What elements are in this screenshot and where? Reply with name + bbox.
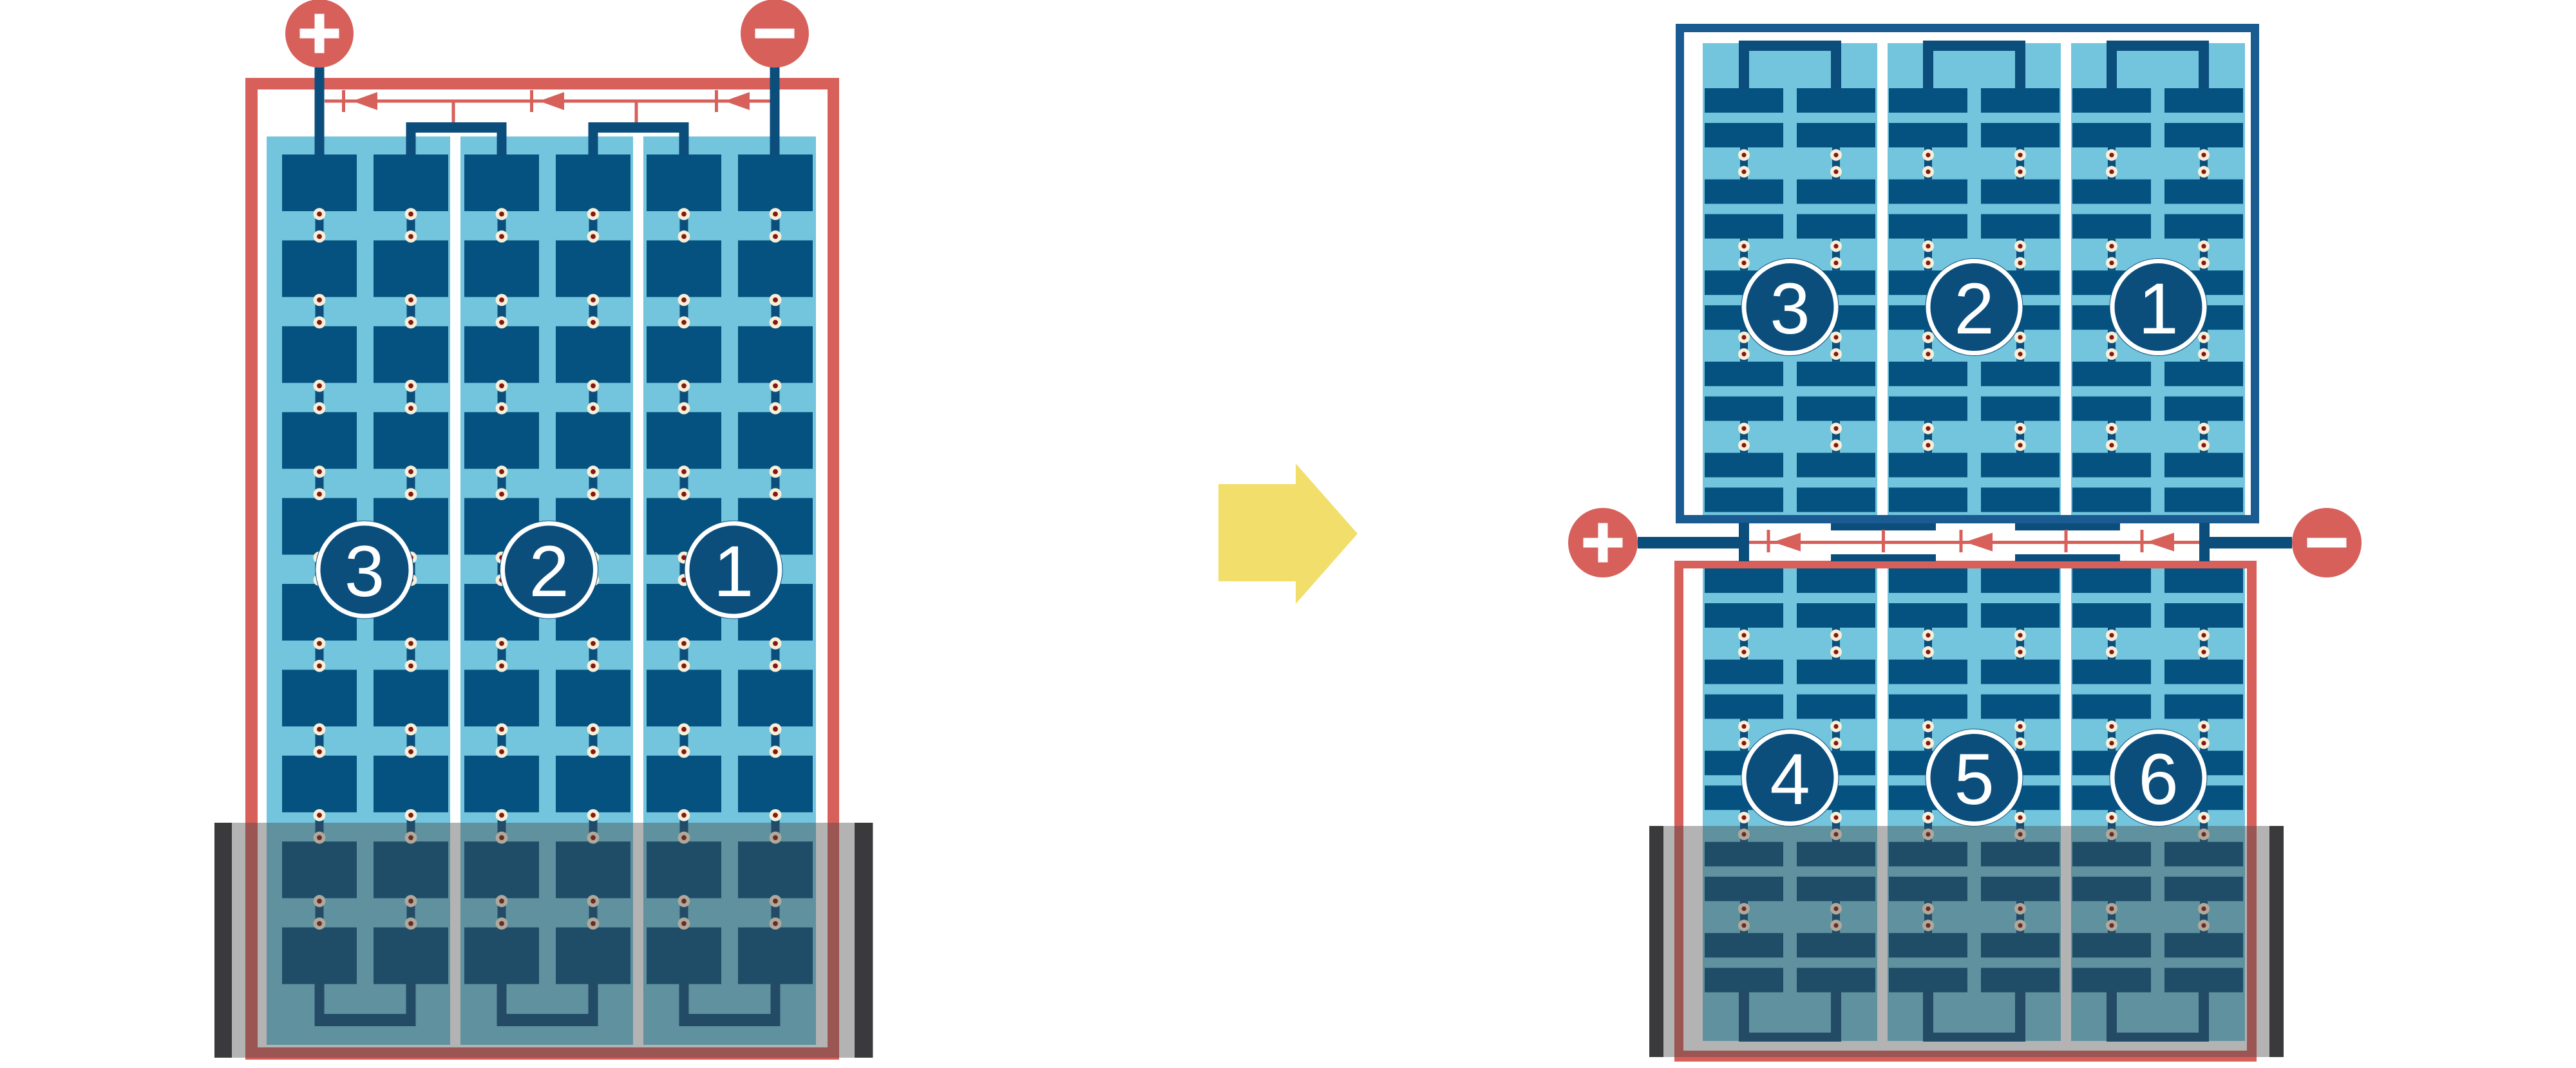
svg-text:4: 4: [1770, 739, 1810, 820]
svg-text:2: 2: [1954, 268, 1994, 349]
svg-text:1: 1: [2138, 268, 2178, 349]
svg-text:5: 5: [1954, 739, 1994, 820]
svg-text:6: 6: [2138, 739, 2178, 820]
svg-text:3: 3: [1770, 268, 1810, 349]
svg-text:1: 1: [714, 531, 753, 612]
svg-text:3: 3: [345, 531, 384, 612]
svg-text:2: 2: [529, 531, 569, 612]
